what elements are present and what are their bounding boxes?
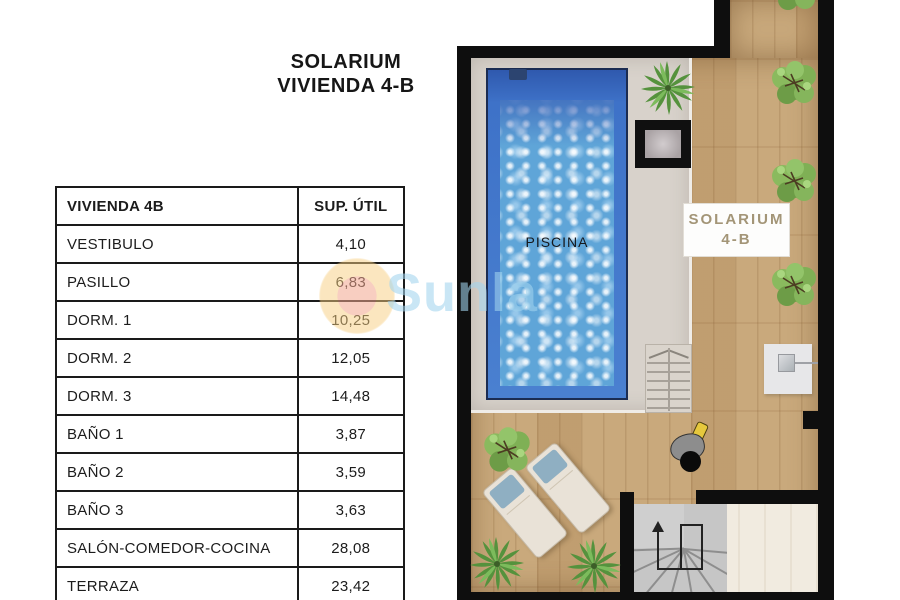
step-line xyxy=(647,407,690,409)
floor-plan: PISCINA SOLARIUM 4-B xyxy=(0,0,900,600)
stair-chevron xyxy=(668,349,689,358)
floor-plan-sheet: SOLARIUM VIVIENDA 4-B VIVIENDA 4B SUP. Ú… xyxy=(0,0,900,600)
outdoor-stairs xyxy=(645,344,692,413)
wall-left xyxy=(457,46,471,600)
person-figure xyxy=(668,420,712,476)
shower-head-icon xyxy=(778,354,795,372)
step-line xyxy=(647,380,690,382)
step-line xyxy=(647,398,690,400)
stair-chevron xyxy=(649,350,669,359)
step-line xyxy=(647,371,690,373)
stair-opening-outline xyxy=(680,524,703,570)
tree-icon xyxy=(765,54,825,114)
palm-plant-icon xyxy=(564,536,624,596)
shower-pad xyxy=(764,344,812,394)
tree-icon xyxy=(766,0,826,20)
step-line xyxy=(647,389,690,391)
tree-icon xyxy=(765,152,825,212)
solarium-label-line-1: SOLARIUM xyxy=(689,210,785,230)
stair-direction-line xyxy=(657,532,659,570)
pool-label: PISCINA xyxy=(488,234,626,250)
solarium-label-line-2: 4-B xyxy=(721,230,751,250)
up-arrow-icon xyxy=(652,521,664,532)
pool-ladder-icon xyxy=(509,69,527,80)
wall-notch xyxy=(803,411,818,429)
person-head xyxy=(680,451,701,472)
interior-stairwell xyxy=(634,504,727,592)
wall-stairwell-top xyxy=(696,490,818,504)
skylight-box xyxy=(635,120,691,168)
tree-icon xyxy=(477,420,539,482)
step-line xyxy=(647,362,690,364)
skylight-glass xyxy=(645,130,681,158)
shower-arm xyxy=(795,362,819,364)
tree-icon xyxy=(765,256,825,316)
wall-top-corner xyxy=(714,0,730,58)
swimming-pool: PISCINA xyxy=(486,68,628,400)
stair-direction-line xyxy=(657,568,681,570)
palm-plant-icon xyxy=(467,534,527,594)
wall-top xyxy=(457,46,730,58)
palm-plant-icon xyxy=(638,58,698,118)
